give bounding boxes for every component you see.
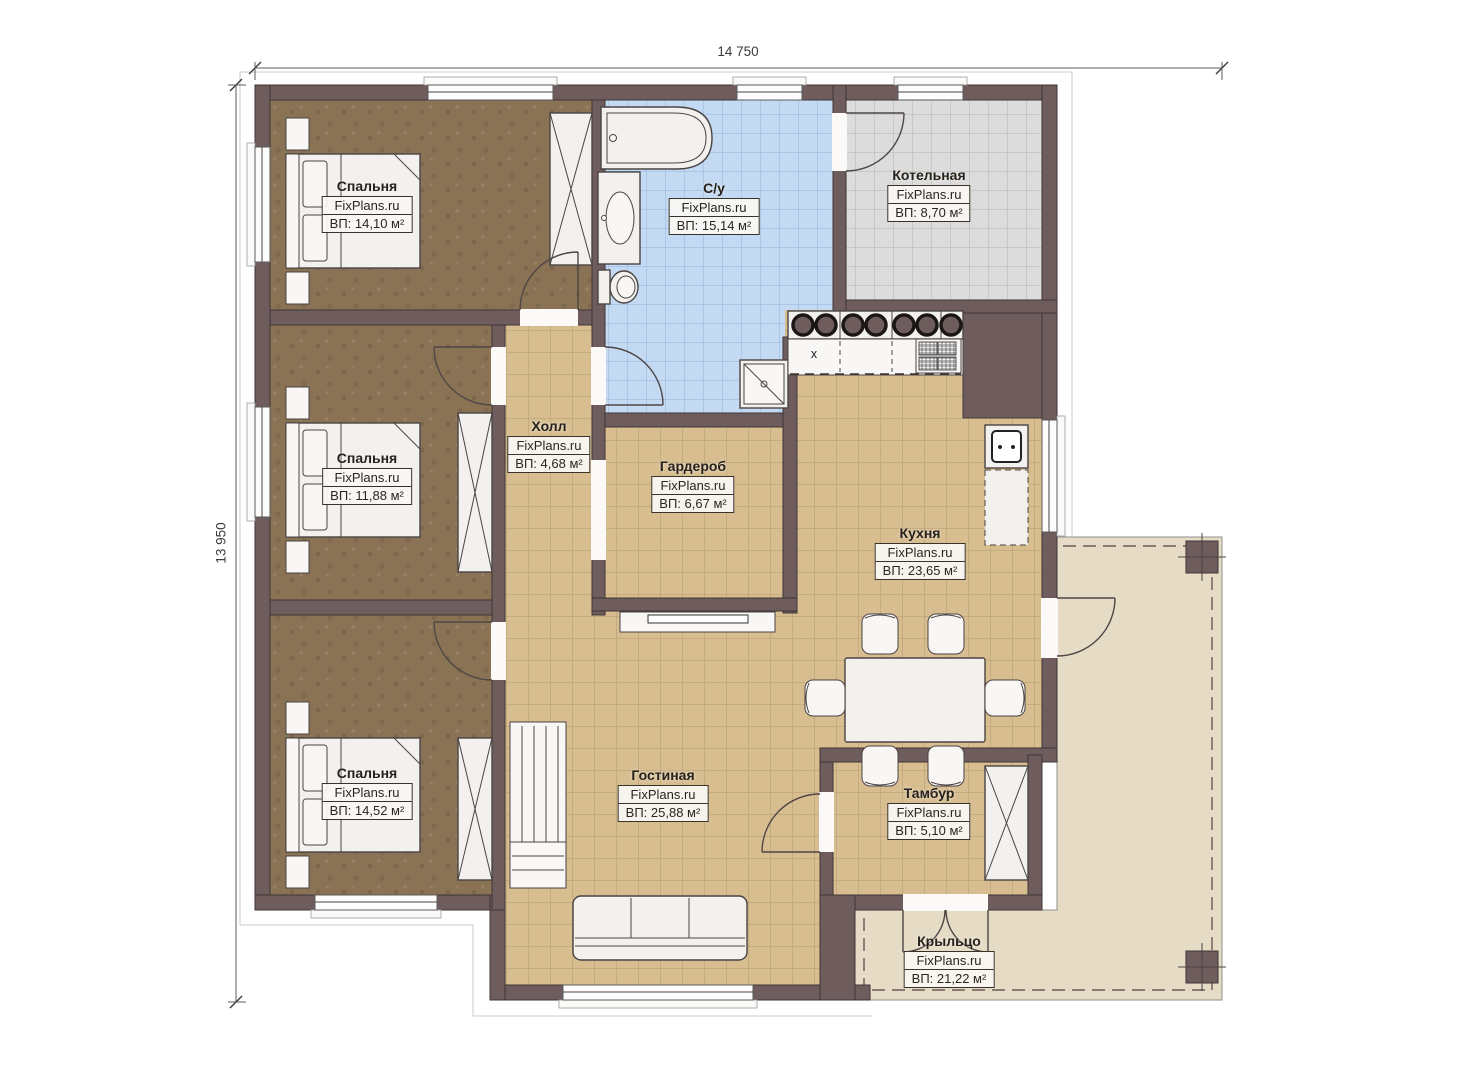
shower-tray (740, 360, 788, 408)
room-watermark: FixPlans.ru (670, 199, 759, 216)
room-area: ВП: 14,52 м² (323, 801, 412, 819)
room-label-wardrobe: Гардероб FixPlans.ru ВП: 6,67 м² (651, 458, 734, 513)
room-info-box: FixPlans.ru ВП: 6,67 м² (651, 476, 734, 513)
room-name: Гостиная (618, 767, 709, 783)
room-label-bathroom: С/у FixPlans.ru ВП: 15,14 м² (669, 180, 760, 235)
dimension-width-label: 14 750 (717, 44, 758, 59)
room-watermark: FixPlans.ru (888, 804, 969, 821)
toilet (598, 270, 638, 304)
nightstand (286, 272, 309, 304)
room-watermark: FixPlans.ru (905, 952, 994, 969)
nightstand (286, 541, 309, 573)
room-name: Тамбур (887, 785, 970, 801)
room-watermark: FixPlans.ru (619, 786, 708, 803)
room-name: Котельная (887, 167, 970, 183)
room-area: ВП: 8,70 м² (888, 203, 969, 221)
sink-vanity (598, 172, 640, 264)
room-label-living-room: Гостиная FixPlans.ru ВП: 25,88 м² (618, 767, 709, 822)
room-name: С/у (669, 180, 760, 196)
room-name: Холл (507, 418, 590, 434)
room-info-box: FixPlans.ru ВП: 14,10 м² (322, 196, 413, 233)
dimension-height-label: 13 950 (214, 522, 229, 563)
room-area: ВП: 11,88 м² (323, 486, 411, 504)
room-area: ВП: 15,14 м² (670, 216, 759, 234)
room-area: ВП: 4,68 м² (508, 454, 589, 472)
kitchen-hob-strip (788, 311, 963, 339)
room-label-vestibule: Тамбур FixPlans.ru ВП: 5,10 м² (887, 785, 970, 840)
tv-stand (620, 612, 775, 632)
room-area: ВП: 6,67 м² (652, 494, 733, 512)
room-label-hall: Холл FixPlans.ru ВП: 4,68 м² (507, 418, 590, 473)
room-area: ВП: 14,10 м² (323, 214, 412, 232)
room-area: ВП: 23,65 м² (876, 561, 965, 579)
room-info-box: FixPlans.ru ВП: 23,65 м² (875, 543, 966, 580)
room-label-porch: Крыльцо FixPlans.ru ВП: 21,22 м² (904, 933, 995, 988)
floor-plan-canvas: 14 750 13 950 х Спальня FixPlans.ru ВП: … (0, 0, 1473, 1080)
room-info-box: FixPlans.ru ВП: 8,70 м² (887, 185, 970, 222)
nightstand (286, 856, 309, 888)
room-info-box: FixPlans.ru ВП: 14,52 м² (322, 783, 413, 820)
room-name: Спальня (322, 450, 412, 466)
room-info-box: FixPlans.ru ВП: 21,22 м² (904, 951, 995, 988)
room-name: Кухня (875, 525, 966, 541)
room-info-box: FixPlans.ru ВП: 5,10 м² (887, 803, 970, 840)
room-name: Гардероб (651, 458, 734, 474)
room-info-box: FixPlans.ru ВП: 25,88 м² (618, 785, 709, 822)
room-watermark: FixPlans.ru (652, 477, 733, 494)
room-name: Спальня (322, 178, 413, 194)
room-area: ВП: 25,88 м² (619, 803, 708, 821)
room-watermark: FixPlans.ru (323, 469, 411, 486)
sink-mark: х (797, 347, 831, 361)
room-label-boiler-room: Котельная FixPlans.ru ВП: 8,70 м² (887, 167, 970, 222)
room-watermark: FixPlans.ru (508, 437, 589, 454)
room-info-box: FixPlans.ru ВП: 15,14 м² (669, 198, 760, 235)
dining-table (845, 658, 985, 742)
room-watermark: FixPlans.ru (876, 544, 965, 561)
bookcase (510, 722, 566, 888)
room-area: ВП: 5,10 м² (888, 821, 969, 839)
nightstand (286, 702, 309, 734)
room-label-bedroom-3: Спальня FixPlans.ru ВП: 14,52 м² (322, 765, 413, 820)
room-name: Спальня (322, 765, 413, 781)
nightstand (286, 118, 309, 150)
room-area: ВП: 21,22 м² (905, 969, 994, 987)
room-label-bedroom-1: Спальня FixPlans.ru ВП: 14,10 м² (322, 178, 413, 233)
room-name: Крыльцо (904, 933, 995, 949)
room-label-bedroom-2: Спальня FixPlans.ru ВП: 11,88 м² (322, 450, 412, 505)
fridge (985, 425, 1028, 468)
stove (916, 339, 961, 373)
counter-dashed (985, 470, 1028, 545)
room-label-kitchen: Кухня FixPlans.ru ВП: 23,65 м² (875, 525, 966, 580)
bathtub (601, 107, 712, 169)
room-watermark: FixPlans.ru (888, 186, 969, 203)
room-watermark: FixPlans.ru (323, 197, 412, 214)
nightstand (286, 387, 309, 419)
room-info-box: FixPlans.ru ВП: 11,88 м² (322, 468, 412, 505)
room-watermark: FixPlans.ru (323, 784, 412, 801)
sofa (573, 896, 747, 960)
room-info-box: FixPlans.ru ВП: 4,68 м² (507, 436, 590, 473)
